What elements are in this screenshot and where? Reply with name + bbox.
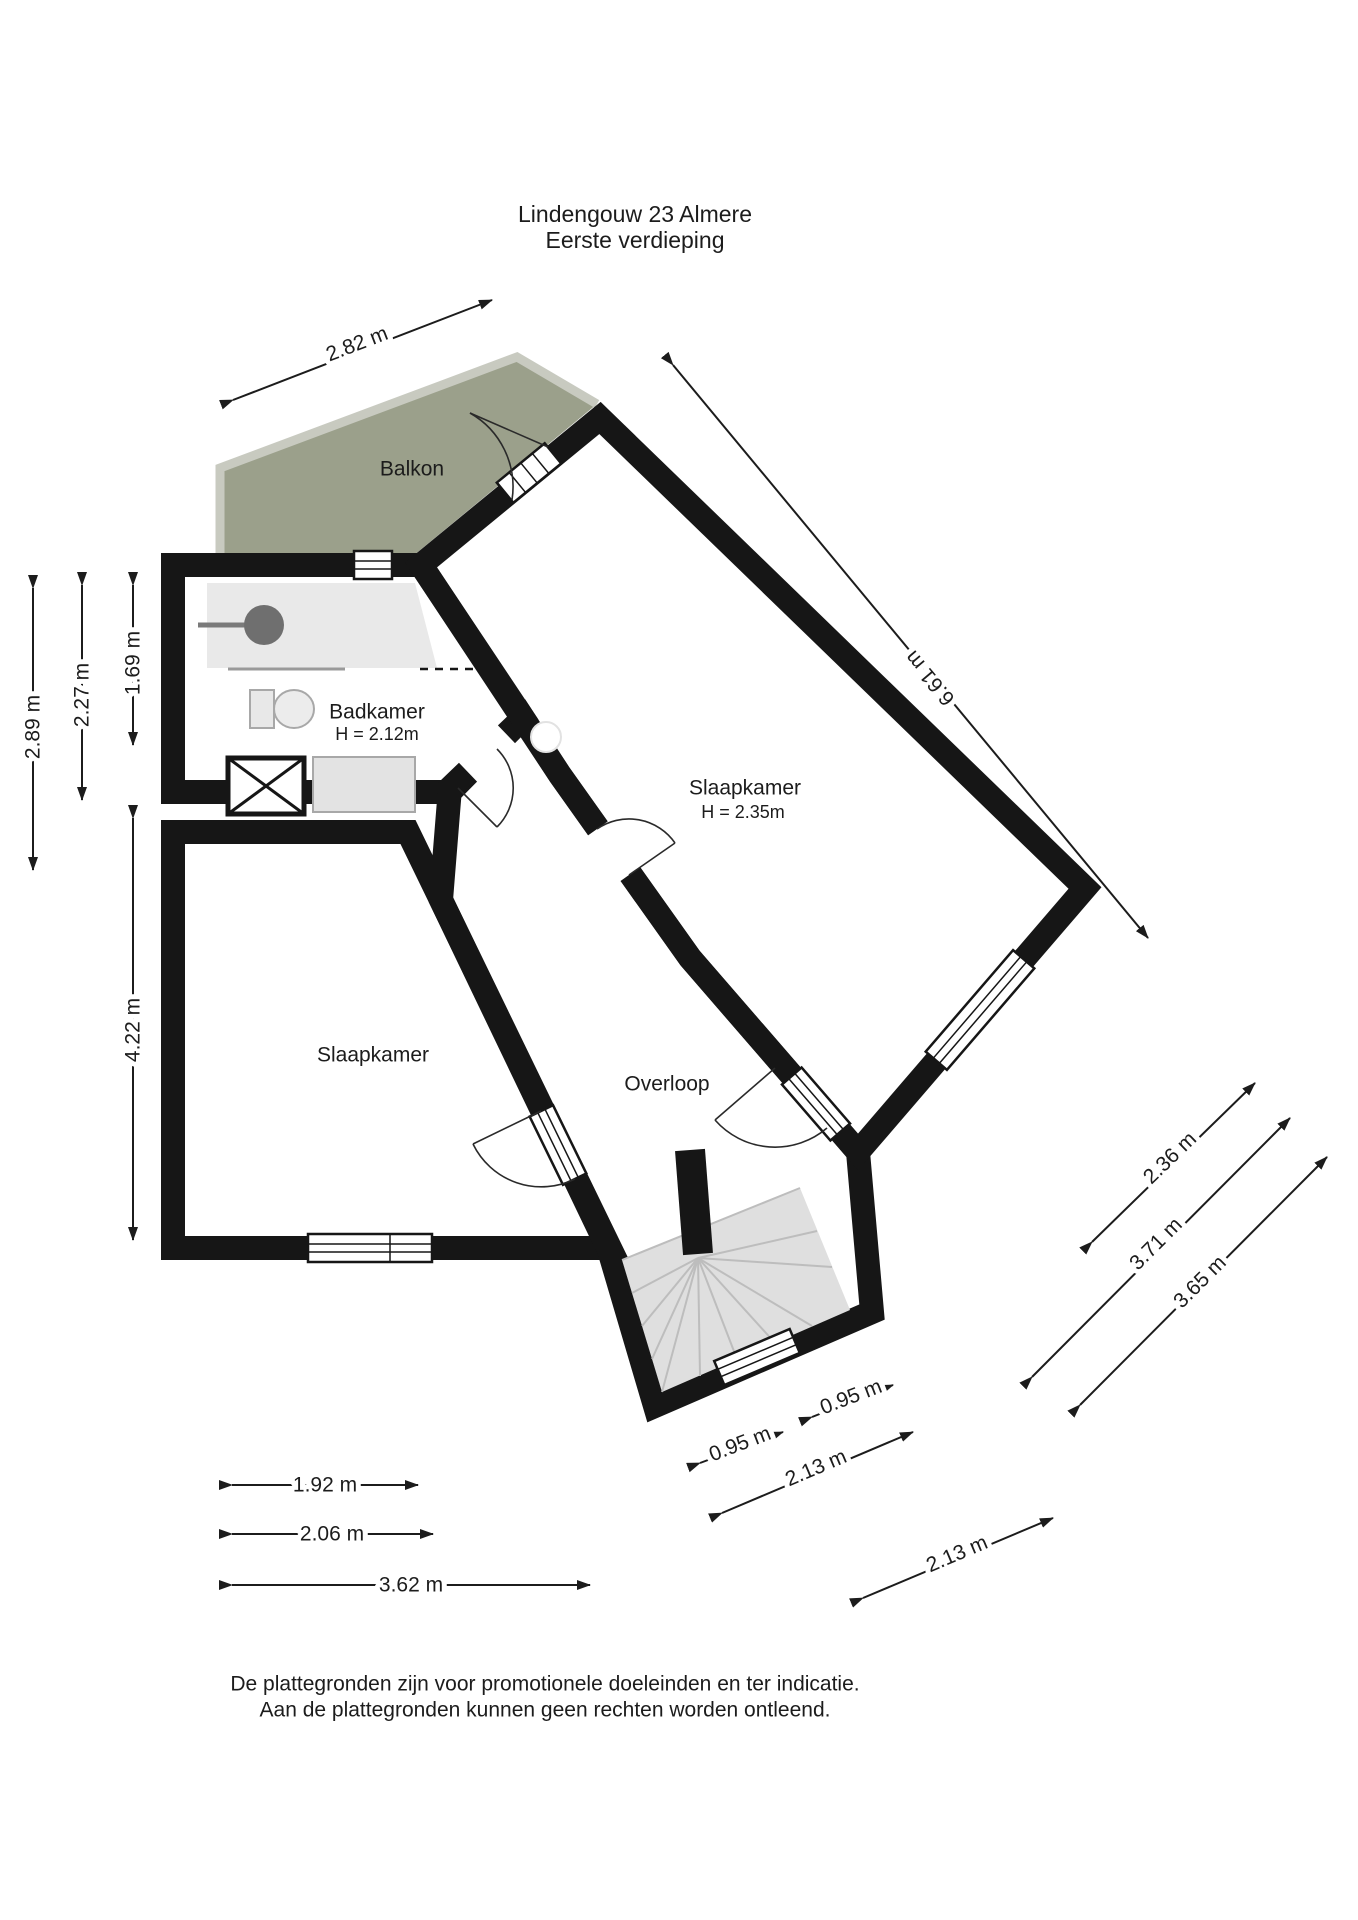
dimension: 1.92 m xyxy=(232,1474,418,1497)
svg-text:2.36 m: 2.36 m xyxy=(1139,1127,1201,1188)
bedroom-door xyxy=(585,819,675,884)
window xyxy=(354,551,392,579)
shaft-x-icon xyxy=(228,758,304,814)
small-bedroom-door xyxy=(473,1105,586,1187)
window xyxy=(926,950,1035,1070)
label-overloop: Overloop xyxy=(624,1073,709,1096)
label-slaapkamer-links: Slaapkamer xyxy=(317,1044,429,1067)
svg-text:1.92 m: 1.92 m xyxy=(293,1474,357,1497)
window xyxy=(308,1234,432,1262)
label-slaapkamer-groot: Slaapkamer xyxy=(689,777,801,800)
dimension: 0.95 m xyxy=(812,1375,893,1419)
svg-text:2.82 m: 2.82 m xyxy=(323,322,391,366)
dimension: 2.06 m xyxy=(232,1523,433,1546)
svg-text:6.61 m: 6.61 m xyxy=(901,646,960,710)
footer-disclaimer-line2: Aan de plattegronden kunnen geen rechten… xyxy=(260,1699,831,1722)
toilet-icon xyxy=(250,690,314,728)
room-slaapkamer-links xyxy=(173,832,610,1248)
stair-wall-stub xyxy=(690,1150,698,1254)
label-badkamer: Badkamer xyxy=(329,701,425,724)
label-slaapkamer-groot-height: H = 2.35m xyxy=(701,802,785,822)
dimension: 2.13 m xyxy=(863,1518,1053,1598)
dimension: 1.69 m xyxy=(122,585,145,745)
window xyxy=(782,1068,850,1141)
dimension: 6.61 m xyxy=(673,365,1148,938)
svg-text:3.65 m: 3.65 m xyxy=(1169,1251,1231,1313)
svg-text:3.71 m: 3.71 m xyxy=(1125,1213,1187,1275)
floorplan-canvas: Lindengouw 23 Almere Eerste verdieping xyxy=(0,0,1358,1920)
svg-text:3.62 m: 3.62 m xyxy=(379,1574,443,1597)
column-dot xyxy=(531,722,561,752)
sink-vanity-icon xyxy=(313,757,415,812)
label-badkamer-height: H = 2.12m xyxy=(335,724,419,744)
svg-text:2.06 m: 2.06 m xyxy=(300,1523,364,1546)
dimension: 4.22 m xyxy=(122,818,145,1240)
svg-text:2.13 m: 2.13 m xyxy=(923,1531,991,1577)
svg-text:0.95 m: 0.95 m xyxy=(817,1375,885,1419)
svg-text:4.22 m: 4.22 m xyxy=(122,998,145,1062)
page-title: Lindengouw 23 Almere xyxy=(518,201,752,227)
dimension: 2.89 m xyxy=(22,588,45,870)
door-swing-arc xyxy=(715,1120,827,1147)
dimension: 3.62 m xyxy=(232,1574,590,1597)
svg-text:2.89 m: 2.89 m xyxy=(22,695,45,759)
floorplan-page: Lindengouw 23 Almere Eerste verdieping xyxy=(0,0,1358,1920)
svg-text:0.95 m: 0.95 m xyxy=(706,1422,774,1466)
page-subtitle: Eerste verdieping xyxy=(546,227,725,253)
dimension: 3.65 m xyxy=(1080,1157,1327,1405)
footer-disclaimer-line1: De plattegronden zijn voor promotionele … xyxy=(230,1673,859,1696)
label-balkon: Balkon xyxy=(380,458,444,481)
svg-text:2.27 m: 2.27 m xyxy=(71,663,94,727)
svg-text:2.13 m: 2.13 m xyxy=(782,1445,850,1491)
dimension: 2.27 m xyxy=(71,585,94,800)
dimension: 0.95 m xyxy=(700,1422,783,1466)
svg-text:1.69 m: 1.69 m xyxy=(122,631,145,695)
